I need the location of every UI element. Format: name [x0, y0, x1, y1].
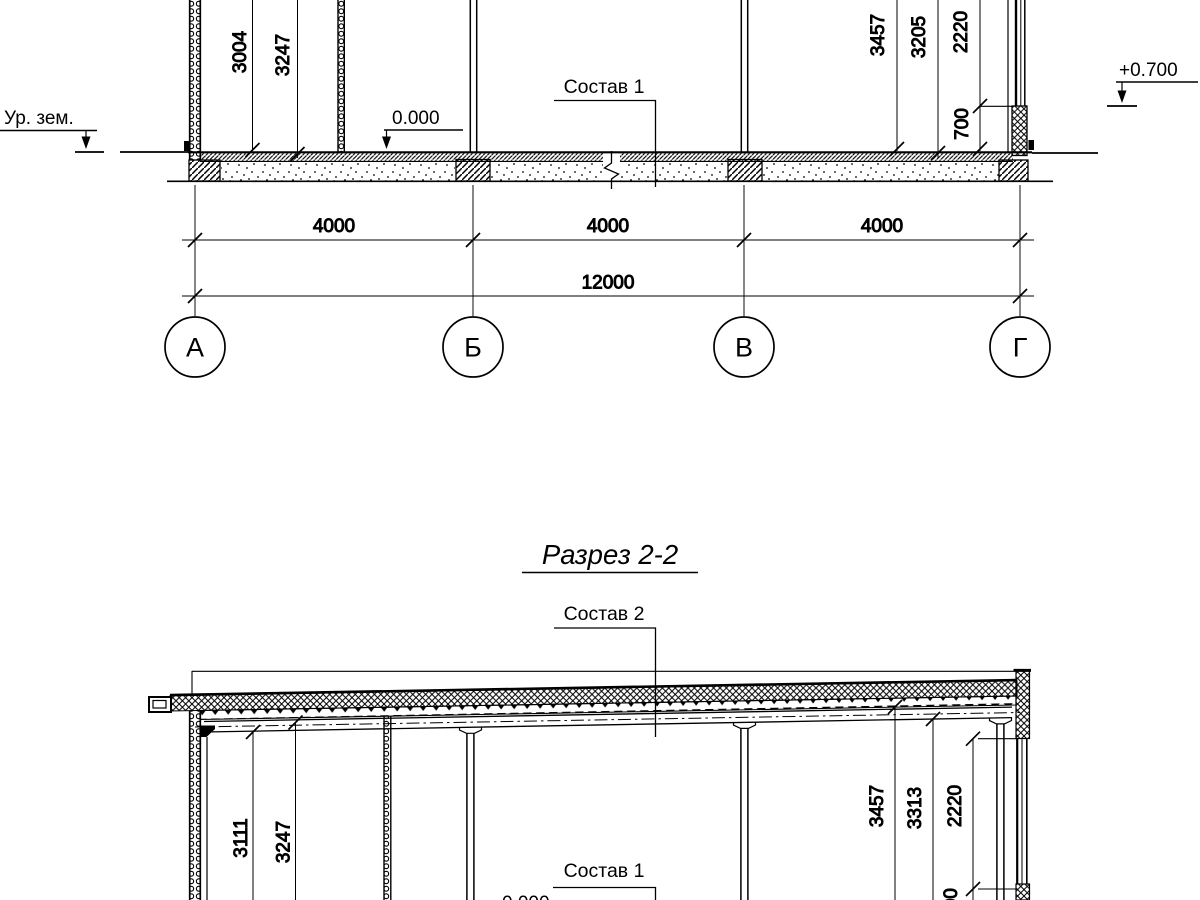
down-arrow-icon [1118, 91, 1127, 104]
roof-cornice [149, 697, 171, 712]
plus-0700-label: +0.700 [1119, 60, 1178, 81]
right-wall-upper [980, 0, 1027, 156]
span-dim-1: 4000 [313, 216, 355, 237]
zero-level-mark-upper: 0.000 [382, 108, 463, 149]
dim-text-3247-lower: 3247 [274, 821, 295, 863]
roof-composition: Состав 2 [554, 603, 656, 737]
dim-text-700-lower: 700 [941, 888, 962, 900]
zero-level-label-lower: 0.000 [502, 893, 550, 900]
axis-letter-v: В [735, 333, 753, 363]
plus-0700-level-mark: +0.700 [1032, 60, 1198, 153]
dim-text-3111: 3111 [231, 818, 252, 857]
left-wall-upper [189, 0, 201, 160]
drawing-title-block: Разрез 2-2 [522, 539, 698, 573]
down-arrow-icon [382, 137, 391, 150]
dim-text-3205: 3205 [909, 16, 930, 58]
lower-section: Состав 2 [149, 603, 1031, 900]
axis-bubbles: А Б В Г [165, 317, 1050, 377]
foundation-pad [189, 160, 220, 181]
span-dim-3: 4000 [861, 216, 903, 237]
foundation-pad [999, 160, 1028, 181]
roof-composition-label: Состав 2 [564, 603, 645, 625]
dim-text-3004: 3004 [230, 30, 251, 73]
zero-level-label-upper: 0.000 [392, 108, 440, 129]
dim-text-2220-lower: 2220 [945, 785, 966, 827]
dim-text-3313: 3313 [905, 787, 926, 829]
column-right-lower [990, 718, 1012, 900]
interior-wall-lower [384, 716, 392, 900]
axis-letter-g: Г [1013, 333, 1028, 363]
drawing-canvas: Ур. зем. 0.000 +0.700 [0, 0, 1200, 900]
down-arrow-icon [82, 137, 91, 150]
span-dimensions: 4000 4000 4000 12000 [182, 185, 1034, 316]
plinth [1012, 106, 1027, 156]
span-dim-2: 4000 [587, 216, 629, 237]
drawing-title: Разрез 2-2 [542, 539, 678, 570]
dim-text-3457-lower: 3457 [867, 785, 888, 827]
axis-letter-b: Б [464, 333, 482, 363]
column-b-upper [470, 0, 476, 152]
dim-text-2220-upper: 2220 [951, 11, 972, 53]
column-v-lower [734, 722, 756, 900]
left-wall-lower [189, 711, 215, 900]
ground-level-label: Ур. зем. [4, 108, 74, 129]
column-v-upper [741, 0, 747, 152]
dim-text-3247-upper: 3247 [273, 34, 294, 76]
column-b-lower [460, 727, 482, 900]
plinth [1016, 884, 1030, 900]
axis-letter-a: А [186, 333, 204, 363]
overall-dim: 12000 [582, 273, 635, 294]
spandrel [1016, 671, 1030, 739]
floor-composition-label-lower: Состав 1 [564, 860, 645, 882]
dim-text-3457-upper: 3457 [868, 14, 889, 56]
foundation-pad [728, 160, 762, 182]
ground-level-mark: Ур. зем. [0, 108, 189, 152]
floor-composition-lower: Состав 1 0.000 [502, 860, 656, 900]
floor-composition-label-upper: Состав 1 [564, 76, 645, 98]
section-drawing-svg: Ур. зем. 0.000 +0.700 [0, 0, 1200, 900]
foundation-pad [456, 160, 490, 182]
dim-text-700-upper: 700 [952, 108, 973, 140]
floor-slab-upper [167, 140, 1053, 189]
roof-structure [149, 680, 1020, 732]
upper-section: Ур. зем. 0.000 +0.700 [0, 0, 1198, 377]
interior-wall-upper [338, 0, 345, 153]
